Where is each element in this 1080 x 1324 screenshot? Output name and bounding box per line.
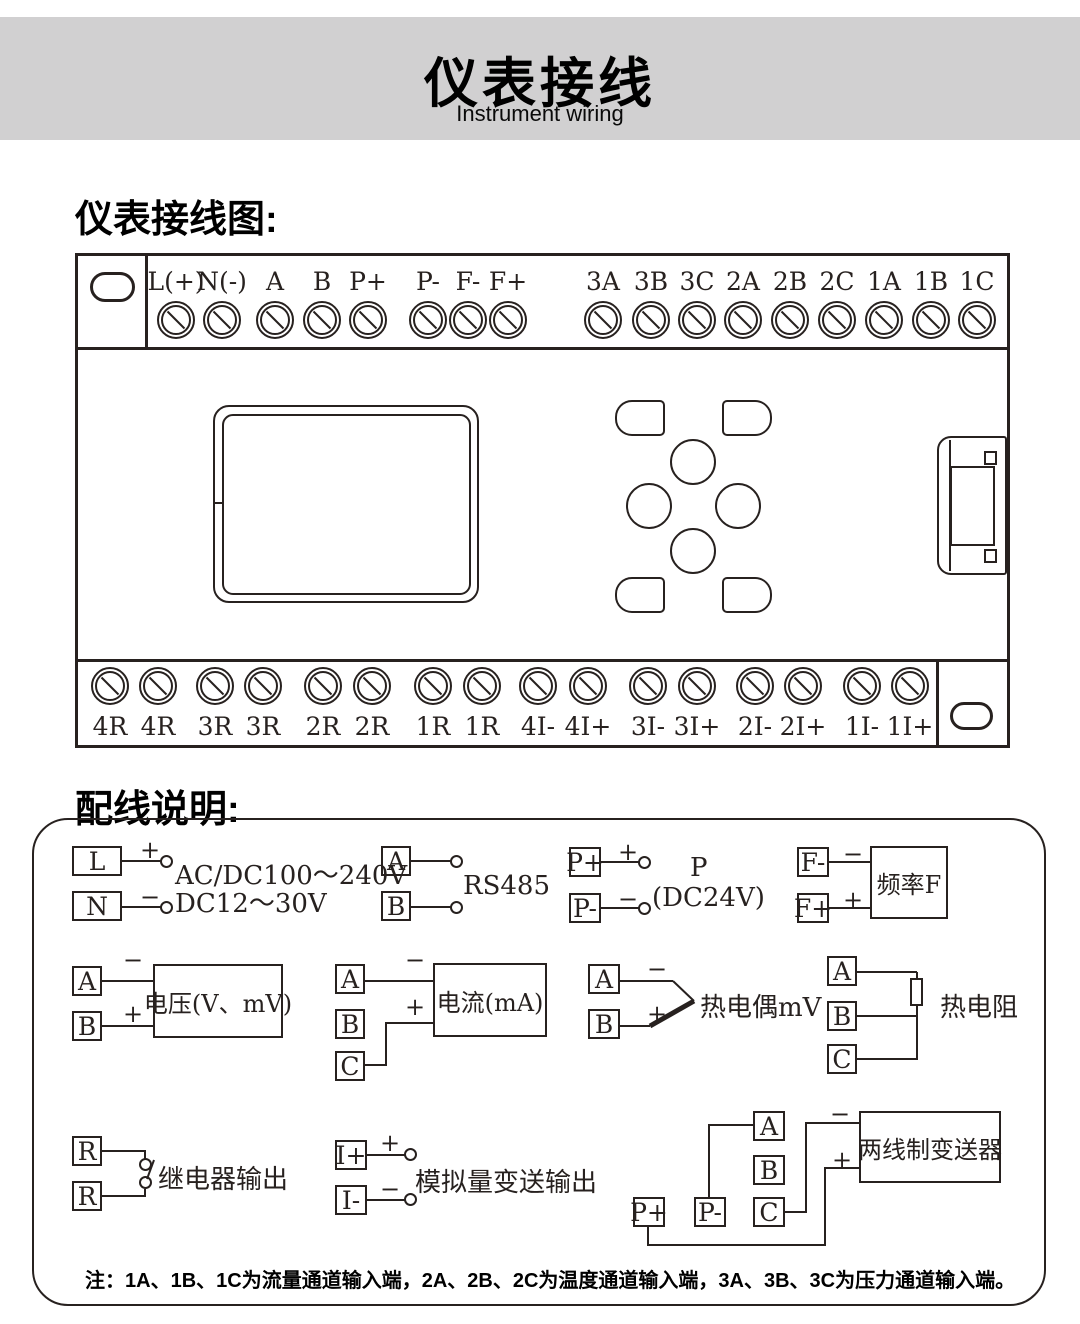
terminal-box: R xyxy=(72,1136,102,1166)
wire xyxy=(620,1025,650,1027)
screw-terminal-icon xyxy=(203,301,241,339)
screw-terminal-icon xyxy=(736,667,774,705)
side-connector-socket xyxy=(950,466,995,546)
terminal-label: F+ xyxy=(476,267,540,296)
wire xyxy=(916,1005,918,1060)
wire xyxy=(365,980,433,982)
terminal-box: F- xyxy=(797,847,829,877)
wire xyxy=(365,1064,387,1066)
screw-terminal-icon xyxy=(353,667,391,705)
polarity-mark: + xyxy=(140,836,160,864)
screw-terminal-icon xyxy=(771,301,809,339)
nav-button-right xyxy=(715,483,761,529)
polarity-mark: + xyxy=(405,993,425,1021)
terminal-label: 4I+ xyxy=(556,712,620,741)
screw-terminal-icon xyxy=(414,667,452,705)
screw-terminal-icon xyxy=(584,301,622,339)
wiring-label: RS485 xyxy=(463,871,550,901)
nav-button-up xyxy=(670,439,716,485)
screw-terminal-icon xyxy=(678,667,716,705)
polarity-mark: + xyxy=(832,1146,852,1174)
terminal-box: P+ xyxy=(569,847,601,877)
screw-terminal-icon xyxy=(891,667,929,705)
bottom-strip-divider xyxy=(936,662,939,745)
device-box: 电流(mA) xyxy=(433,963,547,1037)
bottom-strip-line xyxy=(78,659,1007,662)
terminal-box: B xyxy=(72,1011,102,1041)
polarity-mark: − xyxy=(647,955,667,983)
page-subtitle: Instrument wiring xyxy=(0,101,1080,127)
instrument-device: L(+)N(-)ABP+P-F-F+3A3B3C2A2B2C1A1B1C 4R4… xyxy=(75,253,1010,748)
polarity-mark: − xyxy=(843,840,863,868)
polarity-mark: − xyxy=(380,1175,400,1203)
device-box: 电压(V、mV) xyxy=(153,964,283,1038)
screw-terminal-icon xyxy=(724,301,762,339)
function-button-top-right xyxy=(722,400,772,436)
wiring-label: DC12～30V xyxy=(175,883,327,920)
device-box: 频率F xyxy=(870,846,948,919)
terminal-box: A xyxy=(753,1111,785,1141)
display-screen-inner xyxy=(222,414,471,595)
wire xyxy=(385,1022,387,1066)
terminal-label: P+ xyxy=(336,267,400,296)
polarity-mark: + xyxy=(123,1000,143,1028)
wire xyxy=(805,1122,807,1213)
manual-page: 仪表接线 Instrument wiring 仪表接线图: L(+)N(-)AB… xyxy=(0,0,1080,1324)
wire-endpoint-icon xyxy=(160,901,173,914)
terminal-box: A xyxy=(335,964,365,994)
terminal-label: 2R xyxy=(340,712,404,741)
wiring-label: 热电阻 xyxy=(940,987,1018,1024)
screw-terminal-icon xyxy=(632,301,670,339)
polarity-mark: + xyxy=(380,1129,400,1157)
wire-endpoint-icon xyxy=(404,1148,417,1161)
terminal-box: A xyxy=(72,966,102,996)
terminal-box: A xyxy=(588,964,620,994)
terminal-box: L xyxy=(72,846,122,876)
terminal-label: 4R xyxy=(126,712,190,741)
screw-terminal-icon xyxy=(157,301,195,339)
screw-terminal-icon xyxy=(196,667,234,705)
wire xyxy=(785,1211,807,1213)
wire xyxy=(102,980,153,982)
terminal-box: I+ xyxy=(335,1140,367,1170)
screw-terminal-icon xyxy=(629,667,667,705)
function-button-bottom-right xyxy=(722,577,772,613)
screw-terminal-icon xyxy=(784,667,822,705)
wire-endpoint-icon xyxy=(139,1176,152,1189)
display-notch xyxy=(213,502,222,504)
screw-terminal-icon xyxy=(463,667,501,705)
screw-terminal-icon xyxy=(489,301,527,339)
wire xyxy=(385,1022,433,1024)
function-button-bottom-left xyxy=(615,577,665,613)
side-connector-tab-bottom xyxy=(984,549,997,563)
screw-terminal-icon xyxy=(304,667,342,705)
top-strip-line xyxy=(78,347,1007,350)
terminal-label: 2I+ xyxy=(771,712,835,741)
screw-terminal-icon xyxy=(91,667,129,705)
screw-terminal-icon xyxy=(843,667,881,705)
polarity-mark: − xyxy=(123,946,143,974)
screw-terminal-icon xyxy=(449,301,487,339)
screw-terminal-icon xyxy=(912,301,950,339)
wire-endpoint-icon xyxy=(638,856,651,869)
polarity-mark: + xyxy=(843,886,863,914)
wiring-label: (DC24V) xyxy=(652,883,765,913)
terminal-box: B xyxy=(753,1155,785,1185)
wiring-label: 模拟量变送输出 xyxy=(415,1162,597,1199)
page-banner: 仪表接线 Instrument wiring xyxy=(0,17,1080,140)
wire xyxy=(857,1058,917,1060)
terminal-box: F+ xyxy=(797,893,829,923)
mounting-slot-icon xyxy=(90,272,135,302)
wire-endpoint-icon xyxy=(450,901,463,914)
wire-endpoint-icon xyxy=(139,1158,152,1171)
wire xyxy=(824,1167,826,1246)
polarity-mark: + xyxy=(647,1000,667,1028)
diagram-heading: 仪表接线图: xyxy=(75,188,278,243)
nav-button-left xyxy=(626,483,672,529)
wire xyxy=(648,1244,826,1246)
wire-endpoint-icon xyxy=(160,855,173,868)
wire xyxy=(411,906,452,908)
polarity-mark: + xyxy=(618,838,638,866)
wire-endpoint-icon xyxy=(450,855,463,868)
wire xyxy=(647,1226,649,1246)
terminal-box: B xyxy=(335,1009,365,1039)
terminal-label: 1I+ xyxy=(878,712,942,741)
screw-terminal-icon xyxy=(569,667,607,705)
terminal-box: B xyxy=(381,891,411,921)
polarity-mark: − xyxy=(830,1100,850,1128)
wire xyxy=(102,1195,146,1197)
screw-terminal-icon xyxy=(349,301,387,339)
wire xyxy=(102,1150,146,1152)
screw-terminal-icon xyxy=(409,301,447,339)
device-box: 两线制变送器 xyxy=(859,1111,1001,1183)
terminal-box: C xyxy=(753,1197,785,1227)
wire xyxy=(411,860,452,862)
terminal-box: C xyxy=(335,1051,365,1081)
wiring-label: P xyxy=(690,853,708,883)
function-button-top-left xyxy=(615,400,665,436)
polarity-mark: − xyxy=(618,885,638,913)
terminal-box: R xyxy=(72,1181,102,1211)
wiring-note: 注：1A、1B、1C为流量通道输入端，2A、2B、2C为温度通道输入端，3A、3… xyxy=(85,1264,1015,1293)
screw-terminal-icon xyxy=(958,301,996,339)
mounting-slot-icon xyxy=(950,702,993,730)
wire xyxy=(708,1124,710,1199)
wire xyxy=(857,1015,917,1017)
terminal-box: P- xyxy=(569,893,601,923)
terminal-label: 3R xyxy=(231,712,295,741)
terminal-label: 3I+ xyxy=(665,712,729,741)
terminal-box: A xyxy=(827,956,857,986)
wire xyxy=(708,1124,753,1126)
screw-terminal-icon xyxy=(519,667,557,705)
screw-terminal-icon xyxy=(818,301,856,339)
terminal-box: B xyxy=(827,1001,857,1031)
screw-terminal-icon xyxy=(139,667,177,705)
nav-button-down xyxy=(670,528,716,574)
wiring-label: 继电器输出 xyxy=(158,1159,288,1196)
resistor-symbol-icon xyxy=(910,978,923,1006)
screw-terminal-icon xyxy=(244,667,282,705)
terminal-box: P+ xyxy=(633,1197,665,1227)
terminal-label: 1C xyxy=(945,267,1009,296)
terminal-box: P- xyxy=(694,1197,726,1227)
polarity-mark: − xyxy=(405,946,425,974)
terminal-box: C xyxy=(827,1044,857,1074)
terminal-label: 1R xyxy=(450,712,514,741)
screw-terminal-icon xyxy=(865,301,903,339)
wiring-label: 热电偶mV xyxy=(700,987,821,1024)
terminal-box: N xyxy=(72,891,122,921)
side-connector-tab-top xyxy=(984,451,997,465)
screw-terminal-icon xyxy=(256,301,294,339)
screw-terminal-icon xyxy=(303,301,341,339)
polarity-mark: − xyxy=(140,883,160,911)
terminal-box: I- xyxy=(335,1185,367,1215)
wire xyxy=(857,971,917,973)
screw-terminal-icon xyxy=(678,301,716,339)
terminal-box: B xyxy=(588,1009,620,1039)
wire-endpoint-icon xyxy=(638,902,651,915)
